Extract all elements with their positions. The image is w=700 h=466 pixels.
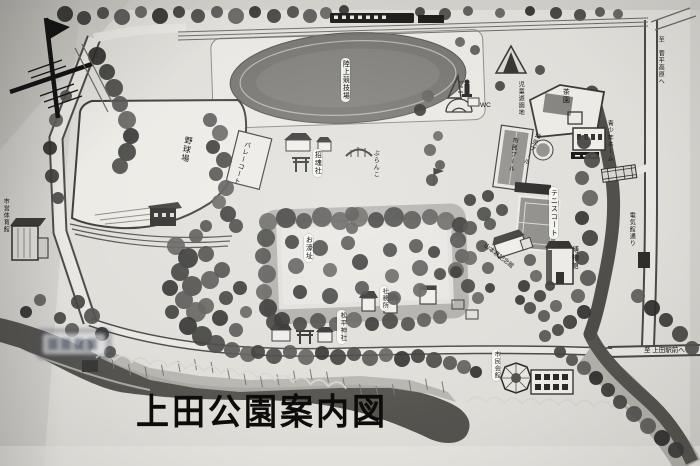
label-tea-garden: 茶園 [562, 88, 569, 104]
label-moat-site: お濠址 [304, 234, 313, 262]
small-hut [82, 360, 98, 372]
label-to-sugadaira: 至 菅平高原へ [657, 36, 663, 85]
label-children-playground: 児童遊園地 [517, 81, 523, 116]
label-museum: 博物館 [571, 246, 578, 270]
scanned-park-map: 上田公園案内図 陸上競技場 野球場 市営体育館 バレーコート 招魂社 ぶらんこ … [0, 0, 700, 466]
label-civic-hall: 市民会館 [492, 349, 500, 381]
label-athletics-track: 陸上競技場 [341, 58, 350, 102]
library-stamp [36, 328, 112, 360]
label-tennis-court: テニスコート [549, 187, 558, 239]
toilet-hut [468, 98, 479, 106]
label-shokonsha-shrine: 招魂社 [313, 149, 322, 177]
label-east-road: 電気館通り [628, 212, 634, 247]
label-swing: ぶらんこ [372, 150, 378, 178]
label-youth-home: 青少年ホーム [606, 120, 612, 162]
label-shrine-office: 社務所 [380, 286, 388, 311]
label-matsudaira-shrine: 松平神社 [337, 310, 346, 344]
label-gymnasium: 市営体育館 [2, 198, 8, 233]
statue-icon [462, 94, 472, 97]
roadside-building [638, 252, 650, 268]
museum-building [545, 241, 573, 284]
label-toilet: WC [480, 103, 491, 110]
map-title: 上田公園案内図 [136, 394, 388, 431]
label-to-ueda-station: 至 上田駅前へ [644, 348, 685, 355]
castle-tower-south [362, 298, 375, 311]
